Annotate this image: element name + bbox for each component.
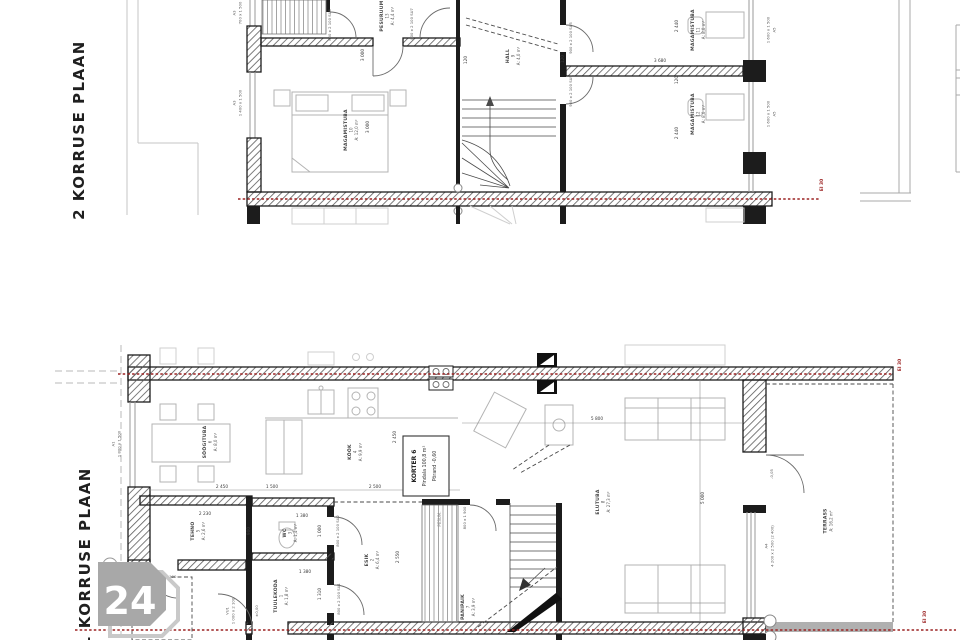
dim-2440-upper: 2 440 <box>674 20 680 33</box>
svg-text:4: 4 <box>353 450 358 453</box>
svg-text:A: 1,8 m²: A: 1,8 m² <box>284 586 289 605</box>
svg-text:A: 8,0 m²: A: 8,0 m² <box>213 432 218 451</box>
svg-text:A: 9,9 m²: A: 9,9 m² <box>358 442 363 461</box>
door-spec-su6: 800 x 2 100 SU6 <box>327 9 332 41</box>
floor-plan-sheet: MAGAMISTUBA 10 A: 12,0 m² 3 000 HALL 9 A… <box>0 0 960 640</box>
svg-text:1 310: 1 310 <box>317 588 323 601</box>
stairs-2f-icon <box>462 18 558 188</box>
svg-text:A5: A5 <box>772 27 777 33</box>
plan-2nd-floor: MAGAMISTUBA 10 A: 12,0 m² 3 000 HALL 9 A… <box>232 0 826 224</box>
svg-text:3: 3 <box>288 531 293 534</box>
closet-icon <box>262 0 326 34</box>
window-spec-a3-top: A3 700 x 1 500 <box>232 1 243 24</box>
svg-text:900 x 2 100 SU5: 900 x 2 100 SU5 <box>568 22 573 54</box>
svg-text:A: 8,0 m²: A: 8,0 m² <box>701 20 706 39</box>
svg-text:5: 5 <box>196 529 201 532</box>
plan2-left-wall <box>247 0 261 192</box>
room-label-pesuruum: PESURUUM 13 A: 4,4 m² <box>379 0 395 31</box>
svg-text:800 x 2 100 SU2: 800 x 2 100 SU2 <box>335 515 340 547</box>
window-spec-a4: A4 4 200 x 2 500 (2 400) <box>764 525 775 567</box>
svg-text:1 000 x 2 100: 1 000 x 2 100 <box>231 597 236 624</box>
window-spec-a1: A1 1 800 x 1 500 <box>111 430 122 457</box>
svg-text:EI 30: EI 30 <box>897 359 903 371</box>
svg-text:A: 8,0 m²: A: 8,0 m² <box>701 104 706 123</box>
svg-text:A: 27,3 m²: A: 27,3 m² <box>606 491 611 512</box>
svg-text:EI 30: EI 30 <box>922 611 928 623</box>
svg-text:1 000: 1 000 <box>317 525 323 538</box>
svg-text:800 x 2 100 SU7: 800 x 2 100 SU7 <box>409 8 414 40</box>
dim-2440-lower: 2 440 <box>674 127 680 140</box>
door-spec-su5-lower: 900 x 2 100 SU5 <box>568 75 573 107</box>
svg-text:120: 120 <box>560 55 566 63</box>
svg-text:800 x 1 900: 800 x 1 900 <box>462 506 467 529</box>
svg-text:1 KORRUSE PLAAN: 1 KORRUSE PLAAN <box>76 467 94 640</box>
dim-1380-tuulekoda: 1 380 <box>299 569 312 575</box>
dim-2500: 2 500 <box>369 484 382 490</box>
svg-text:4 200 x 2 500 (2 400): 4 200 x 2 500 (2 400) <box>770 525 775 567</box>
bed-icon <box>274 90 406 172</box>
fire-rating-label-1f-bottom: EI 30 <box>922 611 928 623</box>
sofa-icon <box>625 398 725 613</box>
svg-text:2 440: 2 440 <box>674 127 680 140</box>
pesum-label: PESUM. <box>437 511 442 526</box>
room-label-tuulekoda: TUULEKODA 1 A: 1,8 m² <box>273 579 289 613</box>
dim-120-b: 120 <box>560 55 566 63</box>
dim-3000-pesu: 3 000 <box>360 49 366 62</box>
svg-text:7: 7 <box>466 605 471 608</box>
svg-text:5 000: 5 000 <box>700 492 706 505</box>
dim-1000: 1 000 <box>317 525 323 538</box>
plan2-right-wall <box>743 0 766 192</box>
plan1-party-wall-bottom <box>246 622 772 634</box>
dim-2550: 2 550 <box>395 551 401 564</box>
stairs-1f-icon <box>478 503 562 632</box>
svg-text:120: 120 <box>463 56 469 64</box>
room-label-soogituba: SÖÖGITUBA 6 A: 8,0 m² <box>201 425 218 458</box>
svg-text:800 x 2 100 SU1: 800 x 2 100 SU1 <box>336 583 341 615</box>
dim-2450-vertical: 2 450 <box>392 431 398 444</box>
dim-1500: 1 500 <box>266 484 279 490</box>
svg-text:A4: A4 <box>764 543 769 549</box>
room-label-elutuba: ELUTUBA 8 A: 27,3 m² <box>595 489 611 514</box>
svg-text:2 440: 2 440 <box>674 20 680 33</box>
level-mark-zero: ±0,00 <box>254 605 259 617</box>
dim-1310: 1 310 <box>317 588 323 601</box>
dim-120-a: 120 <box>674 76 680 84</box>
svg-text:3 000: 3 000 <box>360 49 366 62</box>
armchair-icon <box>474 392 526 448</box>
plan1-interior-walls <box>128 496 562 625</box>
level-mark-terrace: -0,05 <box>769 469 774 479</box>
fire-rating-label-1f-top: EI 30 <box>897 359 903 371</box>
svg-text:900 x 2 100 SU5: 900 x 2 100 SU5 <box>568 75 573 107</box>
door-spec-su2: 800 x 2 100 SU2 <box>335 515 340 547</box>
plan2-interior-walls <box>261 0 743 192</box>
svg-text:1 800 x 1 500: 1 800 x 1 500 <box>117 430 122 457</box>
svg-text:1 600 x 1 500: 1 600 x 1 500 <box>766 16 771 43</box>
logo-24-text: 24 <box>104 579 157 623</box>
room-label-tehno: TEHNO 5 A: 2,6 m² <box>190 521 206 540</box>
svg-text:KORTER 6: KORTER 6 <box>411 450 418 483</box>
svg-text:A: 3,9 m²: A: 3,9 m² <box>471 597 476 616</box>
plan1-left-wall <box>128 355 150 572</box>
door-spec-su5-upper: 900 x 2 100 SU5 <box>568 22 573 54</box>
room-label-panipaik: PANIPAIK 7 A: 3,9 m² <box>460 594 476 620</box>
window-spec-a3: A3 1 400 x 1 500 <box>232 89 243 116</box>
dim-5000: 5 000 <box>700 492 706 505</box>
dining-table-icon <box>152 404 230 482</box>
window-spec-a5-upper: 1 600 x 1 500 A5 <box>766 16 777 43</box>
svg-text:A: 2,6 m²: A: 2,6 m² <box>201 521 206 540</box>
svg-text:-0,05: -0,05 <box>769 469 774 479</box>
svg-text:13: 13 <box>385 13 390 19</box>
svg-text:6: 6 <box>208 440 213 443</box>
svg-text:120: 120 <box>674 76 680 84</box>
dim-1380-wc: 1 380 <box>296 513 309 519</box>
dim-5800: 5 800 <box>591 416 604 422</box>
room-label-terrass: TERRASS A: 16,2 m² <box>823 508 834 533</box>
svg-text:1 600 x 1 500: 1 600 x 1 500 <box>766 100 771 127</box>
svg-text:EI 30: EI 30 <box>819 179 825 191</box>
plan1-east-wall <box>743 380 766 634</box>
svg-text:VU1: VU1 <box>225 607 230 615</box>
door-spec-vu1: VU1 1 000 x 2 100 <box>225 597 236 624</box>
plan2-door-arcs <box>330 8 593 104</box>
plan2-neighbour-fragments <box>247 206 766 224</box>
apartment-info-box: KORTER 6 Pindala 100,8 m² Põrand -0,60 <box>403 436 449 496</box>
svg-text:11: 11 <box>696 27 701 33</box>
svg-text:Pindala 100,8 m²: Pindala 100,8 m² <box>422 446 428 487</box>
dim-2450: 2 450 <box>216 484 229 490</box>
dim-900: 900 <box>246 527 252 535</box>
room-label-kook: KÖÖK 4 A: 9,9 m² <box>346 442 363 461</box>
plan-1st-floor: SÖÖGITUBA 6 A: 8,0 m² KÖÖK 4 A: 9,9 m² 2… <box>55 345 956 640</box>
dim-2230: 2 230 <box>199 511 212 517</box>
svg-text:2 KORRUSE PLAAN: 2 KORRUSE PLAAN <box>70 40 88 220</box>
svg-text:PESUM.: PESUM. <box>437 511 442 526</box>
dim-3000-bedroom: 3 000 <box>365 121 371 134</box>
svg-text:1: 1 <box>279 594 284 597</box>
floor1-title: 1 KORRUSE PLAAN <box>76 467 94 640</box>
fire-rating-label-2f: EI 30 <box>819 179 825 191</box>
floor2-title: 2 KORRUSE PLAAN <box>70 40 88 220</box>
svg-text:A1: A1 <box>111 441 116 447</box>
plan2-party-wall <box>247 192 772 206</box>
svg-text:700 x 1 500: 700 x 1 500 <box>238 1 243 24</box>
svg-text:A: 4,0 m²: A: 4,0 m² <box>516 46 521 65</box>
svg-text:8: 8 <box>601 500 606 503</box>
svg-text:3 000: 3 000 <box>365 121 371 134</box>
dim-3680: 3 680 <box>654 58 667 64</box>
door-spec-panipaik: 800 x 1 900 <box>462 506 467 529</box>
svg-text:A: 4,4 m²: A: 4,4 m² <box>390 6 395 25</box>
svg-text:2 450: 2 450 <box>392 431 398 444</box>
svg-text:1 400 x 1 500: 1 400 x 1 500 <box>238 89 243 116</box>
room-label-esik: ESIK 2 A: 6,4 m² <box>364 550 380 569</box>
room-label-wc: WC 3 A: 1,4 m² <box>282 523 298 542</box>
column-icon <box>454 184 462 192</box>
svg-text:A3: A3 <box>232 100 237 106</box>
tv-bench-icon <box>512 405 573 473</box>
svg-text:A5: A5 <box>772 111 777 117</box>
svg-text:A: 6,4 m²: A: 6,4 m² <box>375 550 380 569</box>
svg-text:A3: A3 <box>232 10 237 16</box>
svg-text:2: 2 <box>370 558 375 561</box>
dim-120-c: 120 <box>463 56 469 64</box>
svg-text:900: 900 <box>246 527 252 535</box>
svg-text:A: 1,4 m²: A: 1,4 m² <box>293 523 298 542</box>
svg-text:A: 16,2 m²: A: 16,2 m² <box>829 510 834 531</box>
svg-text:12: 12 <box>696 111 701 117</box>
room-label-hall: HALL 9 A: 4,0 m² <box>505 46 521 65</box>
svg-text:A: 12,0 m²: A: 12,0 m² <box>354 119 359 140</box>
door-spec-su1: 800 x 2 100 SU1 <box>336 583 341 615</box>
svg-text:Põrand -0,60: Põrand -0,60 <box>432 451 438 482</box>
svg-text:800 x 2 100 SU6: 800 x 2 100 SU6 <box>327 9 332 41</box>
window-spec-a5-lower: 1 600 x 1 500 A5 <box>766 100 777 127</box>
svg-text:10: 10 <box>349 127 354 133</box>
floor-plan-canvas: MAGAMISTUBA 10 A: 12,0 m² 3 000 HALL 9 A… <box>0 0 960 640</box>
room-label-magamistuba11: MAGAMISTUBA 11 A: 8,0 m² <box>690 9 706 51</box>
svg-text:±0,00: ±0,00 <box>254 605 259 617</box>
svg-text:2 550: 2 550 <box>395 551 401 564</box>
svg-text:9: 9 <box>511 54 516 57</box>
door-spec-su7: 800 x 2 100 SU7 <box>409 8 414 40</box>
